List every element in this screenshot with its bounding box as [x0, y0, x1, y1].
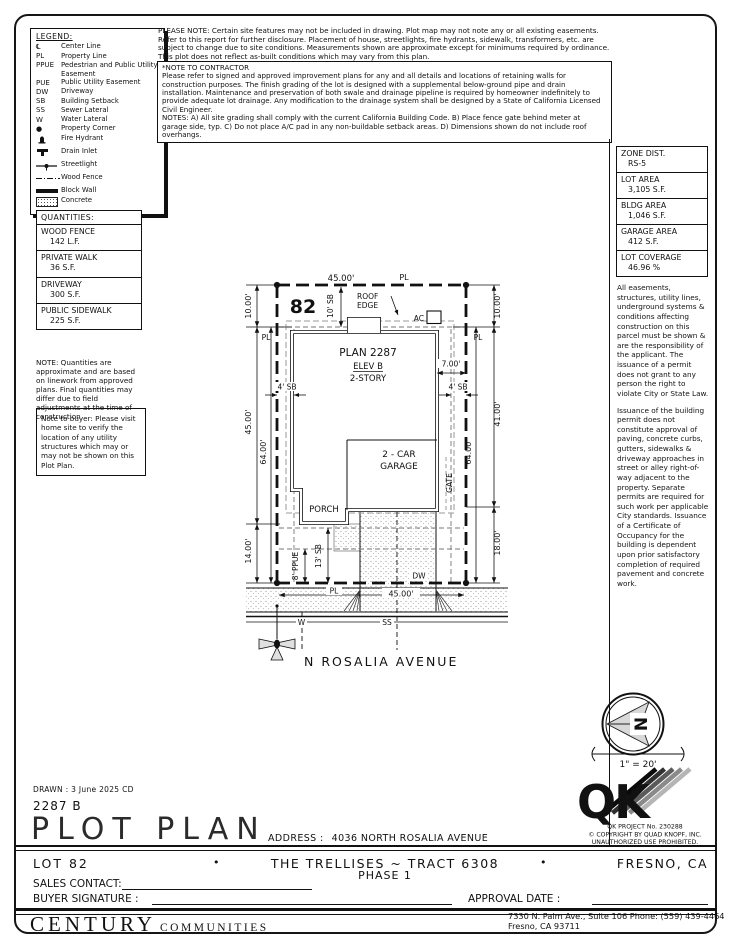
setback-symbol: SB [36, 97, 61, 106]
separator-bullet-1: • [213, 856, 220, 869]
pue-symbol: PUE [36, 78, 61, 87]
property-corner-dot-icon: ● [36, 124, 61, 133]
driveway-symbol: DW [36, 87, 61, 96]
sewer-lateral-label: SS [382, 618, 392, 627]
street-name-label: N ROSALIA AVENUE [304, 654, 458, 669]
legend-item-fire-hydrant: Fire Hydrant [36, 134, 160, 147]
sb-front-label: 10' SB [326, 294, 335, 318]
qk-logo: QK [577, 769, 690, 829]
dim-right-64-label: 64.00' [464, 439, 473, 464]
builder-address: 7330 N. Palm Ave., Suite 106 Phone: (559… [508, 911, 725, 921]
please-note-text: PLEASE NOTE: Certain site features may n… [158, 27, 610, 62]
dim-left-10-label: 10.00' [244, 293, 253, 318]
legend-title: LEGEND: [36, 32, 160, 41]
wood-fence-icon [36, 173, 61, 185]
easement-paragraph-1: All easements, structures, utility lines… [617, 283, 709, 399]
elevation-label: ELEV B [353, 362, 383, 372]
legend-item-property-line: PLProperty Line [36, 52, 160, 61]
plan-name-label: PLAN 2287 [339, 347, 397, 359]
legend-item-ppue: PPUEPedestrian and Public Utility Easeme… [36, 61, 160, 78]
roof-edge-leader [391, 296, 398, 315]
north-label: N [632, 717, 652, 731]
legend-item-drain-inlet: Drain Inlet [36, 147, 160, 160]
scale-bar [592, 747, 684, 761]
ac-pad [427, 311, 441, 324]
quantity-wood-fence: WOOD FENCE142 L.F. [37, 225, 141, 251]
buyer-signature-label: BUYER SIGNATURE : [33, 893, 139, 905]
dim-7-label: 7.00' [442, 360, 461, 369]
quantity-private-walk: PRIVATE WALK36 S.F. [37, 251, 141, 277]
phase-label: PHASE 1 [240, 869, 530, 882]
lot-label: LOT 82 [33, 856, 89, 871]
quantity-driveway: DRIVEWAY300 S.F. [37, 278, 141, 304]
pl-top-label: PL [399, 273, 409, 282]
dim-left-64-label: 64.00' [259, 439, 268, 464]
builder-contact: 7330 N. Palm Ave., Suite 106 Phone: (559… [508, 911, 725, 932]
builder-logo: CENTURYCOMMUNITIES [30, 912, 269, 937]
garage-label-2: GARAGE [380, 462, 418, 472]
builder-city: Fresno, CA 93711 [508, 921, 725, 931]
note-to-buyer-box: Note to buyer: Please visit home site to… [36, 408, 146, 476]
story-label: 2-STORY [350, 374, 387, 384]
garage-area-box: GARAGE AREA412 S.F. [616, 224, 708, 251]
sb-rear-label: 13' SB [314, 544, 323, 568]
lot-area-box: LOT AREA3,105 S.F. [616, 172, 708, 199]
zone-district-box: ZONE DIST.RS-5 [616, 146, 708, 173]
drain-inlet-icon [36, 147, 61, 160]
dim-left-14-label: 14.00' [244, 538, 253, 563]
approval-date-line[interactable] [592, 904, 708, 905]
qk-copyright: © COPYRIGHT BY QUAD KNOPF, INC. [588, 831, 702, 839]
quantities-table: QUANTITIES: WOOD FENCE142 L.F. PRIVATE W… [36, 210, 142, 330]
legend-item-block-wall: Block Wall [36, 186, 160, 196]
streetlight-icon [36, 160, 61, 173]
legend-item-water: WWater Lateral [36, 115, 160, 124]
porch-label: PORCH [309, 505, 339, 515]
plan-number: 2287 B [33, 799, 82, 813]
title-rule [16, 845, 716, 851]
sb-left-label: 4' SB [277, 383, 296, 392]
concrete-icon [36, 196, 61, 210]
roof-edge-label-2: EDGE [357, 301, 378, 310]
legend-box: LEGEND: ℄Center Line PLProperty Line PPU… [30, 28, 165, 215]
city-label: FRESNO, CA [594, 856, 708, 871]
dim-left-45-label: 45.00' [244, 409, 253, 434]
sidewalk-and-street [246, 512, 508, 622]
legend-item-concrete: Concrete [36, 196, 160, 210]
water-symbol: W [36, 115, 61, 124]
ac-label: AC [414, 314, 424, 323]
sb-right-label: 4' SB [448, 383, 467, 392]
legend-item-pue: PUEPublic Utility Easement [36, 78, 160, 87]
legend-item-property-corner: ●Property Corner [36, 124, 160, 133]
property-line-symbol: PL [36, 52, 61, 61]
water-lateral-label: W [298, 618, 306, 627]
north-arrow-compass: N [603, 694, 664, 755]
qk-project-number: QK PROJECT No. 230288 [607, 824, 683, 831]
address-value: 4036 NORTH ROSALIA AVENUE [332, 833, 489, 844]
address-row: ADDRESS :4036 NORTH ROSALIA AVENUE [268, 833, 488, 844]
contractor-note-body: Please refer to signed and approved impr… [162, 72, 607, 114]
compass-scale-logo: N 1" = 20' QK QK PROJECT No. 230288 © CO… [575, 685, 712, 850]
sewer-symbol: SS [36, 106, 61, 115]
legend-item-driveway: DWDriveway [36, 87, 160, 96]
ppue-symbol: PPUE [36, 61, 61, 70]
garage-label-1: 2 - CAR [382, 450, 415, 460]
address-label: ADDRESS : [268, 833, 324, 844]
legend-item-wood-fence: Wood Fence [36, 173, 160, 185]
dim-top-label: 45.00' [328, 274, 355, 284]
sales-contact-label: SALES CONTACT: [33, 878, 122, 890]
separator-bullet-2: • [540, 856, 547, 869]
legend-item-centerline: ℄Center Line [36, 42, 160, 51]
ppue-label: 8' PPUE [291, 551, 300, 580]
lot-coverage-box: LOT COVERAGE46.96 % [616, 250, 708, 277]
site-plan-drawing: 45.00' PL 82 ROOF EDGE AC 10' SB 10.00' … [240, 250, 512, 680]
legend-item-streetlight: Streetlight [36, 160, 160, 173]
builder-suffix: COMMUNITIES [160, 922, 269, 934]
qk-logo-text: QK [577, 775, 652, 829]
contractor-note-list: NOTES: A) All site grading shall comply … [162, 114, 607, 139]
drawn-date: DRAWN : 3 June 2025 CD [33, 785, 134, 794]
legend-item-sewer: SSSewer Lateral [36, 106, 160, 115]
fire-hydrant-icon [36, 134, 61, 147]
lot-number-label: 82 [290, 296, 316, 318]
dim-bottom-label: 45.00' [388, 590, 413, 599]
gate-label: GATE [445, 473, 454, 493]
quantities-title: QUANTITIES: [37, 211, 141, 225]
pl-left-label: PL [262, 333, 272, 342]
scale-label: 1" = 20' [619, 760, 656, 770]
house-footprint [292, 311, 441, 523]
bldg-area-box: BLDG AREA1,046 S.F. [616, 198, 708, 225]
dim-right-41-label: 41.00' [493, 401, 502, 426]
easement-notes: All easements, structures, utility lines… [617, 283, 709, 595]
approval-date-label: APPROVAL DATE : [468, 893, 560, 905]
dim-right-18-label: 18.00' [493, 530, 502, 555]
block-wall-icon [36, 186, 61, 196]
dim-right-10-label: 10.00' [493, 293, 502, 318]
plot-plan-document: { "notices": { "please_note": "PLEASE NO… [0, 0, 732, 947]
quantity-public-sidewalk: PUBLIC SIDEWALK225 S.F. [37, 304, 141, 329]
sheet-title: PLOT PLAN [31, 812, 267, 847]
legend-item-setback: SBBuilding Setback [36, 97, 160, 106]
buyer-signature-line[interactable] [152, 904, 452, 905]
pl-bottom-label: PL [330, 587, 340, 596]
streetlight-symbol [259, 604, 295, 660]
easement-paragraph-2: Issuance of the building permit does not… [617, 406, 709, 589]
centerline-symbol: ℄ [36, 42, 61, 51]
dw-label: DW [412, 572, 426, 581]
note-to-contractor-box: *NOTE TO CONTRACTOR Please refer to sign… [157, 61, 612, 143]
builder-name: CENTURY [30, 912, 156, 936]
site-data-boxes: ZONE DIST.RS-5 LOT AREA3,105 S.F. BLDG A… [616, 147, 708, 277]
pl-right-label: PL [474, 333, 484, 342]
roof-edge-label-1: ROOF [357, 292, 378, 301]
sales-contact-signature-line[interactable] [122, 889, 312, 890]
